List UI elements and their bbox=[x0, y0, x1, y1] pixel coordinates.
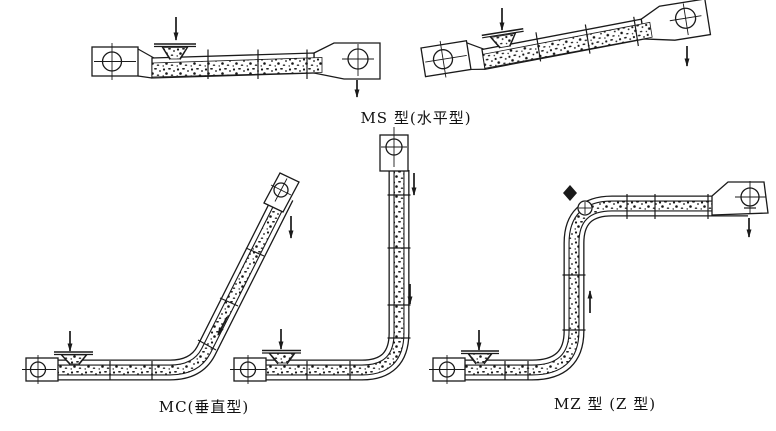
ms-right-conveyor bbox=[420, 0, 710, 81]
mz-z-conveyor bbox=[429, 181, 768, 384]
mc-type-label: MC(垂直型) bbox=[159, 398, 250, 416]
head-housing bbox=[712, 181, 768, 215]
tail-wheel bbox=[230, 355, 266, 384]
tail-wheel bbox=[429, 355, 465, 384]
tail-wheel bbox=[22, 355, 58, 384]
flange-ticks bbox=[505, 194, 708, 380]
ms-left-conveyor bbox=[92, 17, 380, 97]
figure-frame: MS 型(水平型) MC(垂直型) MZ 型 (Z 型) bbox=[0, 0, 776, 431]
duct bbox=[38, 196, 284, 370]
ms-type-label: MS 型(水平型) bbox=[360, 109, 471, 127]
conveyor-types-figure: MS 型(水平型) MC(垂直型) MZ 型 (Z 型) bbox=[0, 0, 776, 431]
mc-inclined-conveyor bbox=[22, 173, 299, 384]
mz-type-label: MZ 型 (Z 型) bbox=[554, 395, 656, 413]
duct bbox=[448, 206, 748, 370]
head-housing bbox=[380, 127, 408, 171]
head-housing bbox=[264, 173, 299, 212]
